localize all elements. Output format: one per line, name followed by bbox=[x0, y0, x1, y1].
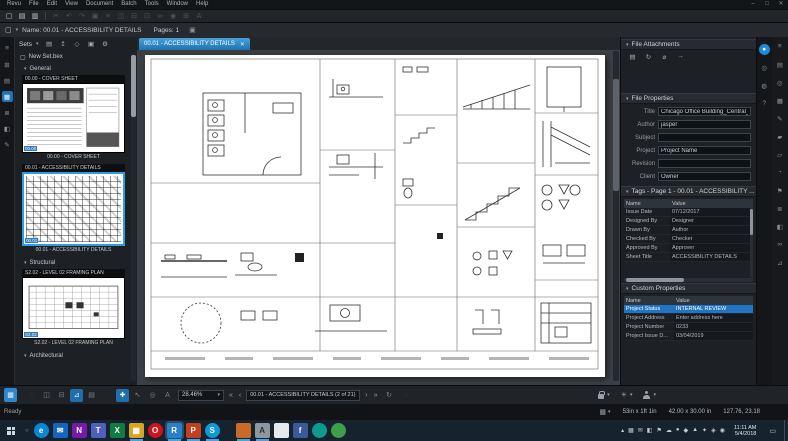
last-page-button[interactable]: » bbox=[373, 392, 379, 399]
file-properties-form: Title Author Subject Project Revision Cl… bbox=[621, 104, 756, 186]
split-sync-icon[interactable]: ◌ bbox=[400, 389, 413, 402]
client-field-label: Client bbox=[626, 174, 658, 180]
layers-panel-icon[interactable]: ≣ bbox=[2, 107, 13, 118]
undo-icon[interactable]: ↶ bbox=[64, 11, 74, 21]
property-name: Project Issue D... bbox=[624, 332, 674, 340]
thumbnails-panel-icon[interactable]: ⊞ bbox=[2, 59, 13, 70]
windows-taskbar: ○ e✉NTX▦ORPS Af ▴ ▦✉◧⚑☁●◆▲✦◈◉ 11:11 AM 5… bbox=[0, 420, 788, 441]
sheet-card-caption: 00.00 - COVER SHEET bbox=[22, 153, 125, 162]
document-canvas[interactable] bbox=[137, 50, 620, 385]
first-page-button[interactable]: « bbox=[228, 392, 234, 399]
name-column-header[interactable]: Name bbox=[624, 199, 670, 208]
pen-tool-icon[interactable]: ✎ bbox=[774, 113, 785, 124]
menu-item[interactable]: Edit bbox=[43, 0, 61, 9]
brightness-icon[interactable]: ☀ bbox=[621, 391, 627, 399]
sheet-card-title: 00.00 - COVER SHEET bbox=[22, 75, 125, 83]
list-panel-icon[interactable]: ≣ bbox=[774, 203, 785, 214]
table-row-project-number[interactable]: Project Number0233 bbox=[624, 323, 753, 332]
image-panel-icon[interactable]: ◧ bbox=[774, 221, 785, 232]
teams-app-icon[interactable]: T bbox=[91, 423, 106, 438]
tray-icon[interactable]: ◧ bbox=[647, 427, 653, 434]
select-text-icon[interactable]: A bbox=[161, 389, 174, 402]
signatures-panel-icon[interactable]: ✎ bbox=[2, 139, 13, 150]
section-header-architectural[interactable]: ▾ Architectural bbox=[15, 350, 137, 361]
file-access-panel-icon[interactable]: ≡ bbox=[2, 43, 13, 54]
pan-tool-icon[interactable]: ✚ bbox=[116, 389, 129, 402]
compare-icon[interactable]: ◫ bbox=[116, 11, 126, 21]
open-window-icon[interactable]: A bbox=[255, 423, 270, 438]
chevron-down-icon: ▾ bbox=[24, 66, 27, 72]
flatten-icon[interactable]: ≡ bbox=[103, 11, 113, 21]
zoom-tool-icon[interactable]: ◎ bbox=[146, 389, 159, 402]
tray-icon[interactable]: ◈ bbox=[711, 427, 716, 434]
tag-value: ACCESSIBILITY DETAILS bbox=[670, 253, 753, 261]
document-icon: ▢ bbox=[5, 26, 12, 34]
property-name: Project Address bbox=[624, 314, 674, 322]
zoom-level-select[interactable]: 28.46% ▾ bbox=[178, 390, 224, 401]
lock-set-icon[interactable]: ▣ bbox=[87, 40, 96, 49]
property-value: 0233 bbox=[674, 323, 753, 331]
properties-panel-icon[interactable]: ≡ bbox=[774, 41, 785, 52]
file-properties-label: File Properties bbox=[632, 95, 674, 102]
tag-name: Sheet Title bbox=[624, 253, 670, 261]
sets-panel-icon[interactable]: ▦ bbox=[2, 91, 13, 102]
author-field-label: Author bbox=[626, 122, 658, 128]
table-row[interactable]: Issue Date07/12/2017 bbox=[624, 208, 753, 217]
chevron-down-icon: ▾ bbox=[217, 392, 220, 398]
sheet-thumbnail[interactable]: 00.00 bbox=[22, 83, 125, 153]
tray-icon[interactable]: ◆ bbox=[683, 427, 688, 434]
cursor-position-readout: 127.76, 23.18 bbox=[723, 409, 760, 415]
chevron-down-icon: ▾ bbox=[24, 353, 27, 359]
tag-value: Designer bbox=[670, 217, 753, 225]
link-icon[interactable]: ∞ bbox=[155, 11, 165, 21]
property-value: INTERNAL REVIEW bbox=[674, 305, 753, 313]
presentation-mode-icon[interactable]: ◌ bbox=[25, 389, 38, 402]
document-tab-bar: 00.01 - ACCESSIBILITY DETAILS ✕ bbox=[137, 37, 620, 50]
chevron-down-icon[interactable]: ▾ bbox=[607, 392, 610, 398]
menu-item[interactable]: Help bbox=[192, 0, 212, 9]
table-row[interactable]: Drawn ByAuthor bbox=[624, 226, 753, 235]
sketch-tool-icon[interactable]: ▤ bbox=[85, 389, 98, 402]
excel-app-icon[interactable]: X bbox=[110, 423, 125, 438]
chevron-down-icon: ▾ bbox=[626, 42, 629, 48]
panel-toggle-button[interactable]: ▦ bbox=[4, 388, 17, 402]
chevron-down-icon[interactable]: ▾ bbox=[608, 409, 611, 415]
tray-icon[interactable]: ☁ bbox=[666, 427, 672, 434]
left-panel-rail: ≡⊞▤▦≣◧✎ bbox=[0, 37, 14, 385]
bluebeam-revu-window: RevuFileEditViewDocumentBatchToolsWindow… bbox=[0, 0, 788, 441]
markup-list-toggle-icon[interactable]: ▦ bbox=[599, 408, 606, 416]
search-panel-icon[interactable]: ◎ bbox=[759, 62, 770, 73]
window-controls: –□✕ bbox=[746, 0, 788, 9]
tag-value: Checker bbox=[670, 235, 753, 243]
revision-field-label: Revision bbox=[626, 161, 658, 167]
table-row-project-status[interactable]: Project StatusINTERNAL REVIEW bbox=[624, 305, 753, 314]
sheet-thumbnail[interactable]: 00.01 bbox=[22, 172, 125, 246]
title-field[interactable] bbox=[658, 107, 751, 116]
windows-logo-icon bbox=[7, 427, 15, 435]
document-area: 00.01 - ACCESSIBILITY DETAILS ✕ bbox=[137, 37, 620, 385]
next-page-button[interactable]: › bbox=[364, 392, 368, 399]
flag-panel-icon[interactable]: ⚑ bbox=[774, 185, 785, 196]
open-set-icon[interactable]: ▤ bbox=[45, 40, 54, 49]
sheet-card-framing[interactable]: S2.02 - LEVEL 02 FRAMING PLAN bbox=[22, 269, 125, 348]
sheet-number-chip: 00.01 bbox=[25, 238, 38, 243]
sheet-card-caption: 00.01 - ACCESSIBILITY DETAILS bbox=[22, 246, 125, 255]
snapshot-icon[interactable]: ⊡ bbox=[142, 11, 152, 21]
spaces-panel-icon[interactable]: ◧ bbox=[2, 123, 13, 134]
document-info-bar: ▢ ▾ Name: 00.01 - ACCESSIBILITY DETAILS … bbox=[0, 22, 788, 37]
form-icon[interactable]: ⊞ bbox=[181, 11, 191, 21]
close-tab-icon[interactable]: ✕ bbox=[240, 41, 245, 48]
document-name-label: Name: 00.01 - ACCESSIBILITY DETAILS bbox=[22, 27, 141, 34]
accessibility-details-art bbox=[26, 176, 121, 242]
tag-name: Approved By bbox=[624, 244, 670, 252]
scrollbar-thumb[interactable] bbox=[750, 209, 753, 235]
tags-header[interactable]: ▾ Tags - Page 1 - 00.01 - ACCESSIBILITY … bbox=[621, 186, 756, 197]
drawing-sheet[interactable] bbox=[145, 55, 605, 377]
table-row-project-issue-date[interactable]: Project Issue D...03/04/2019 bbox=[624, 332, 753, 341]
open-window-icon[interactable]: f bbox=[293, 423, 308, 438]
tag-name: Issue Date bbox=[624, 208, 670, 216]
revision-field[interactable] bbox=[658, 159, 751, 168]
file-properties-header[interactable]: ▾ File Properties bbox=[621, 93, 756, 104]
chevron-down-icon[interactable]: ▾ bbox=[630, 392, 633, 398]
highlight-tool-icon[interactable]: ▰ bbox=[774, 131, 785, 142]
property-name: Project Status bbox=[624, 305, 674, 313]
open-window-icon[interactable] bbox=[312, 423, 327, 438]
file-attachments-label: File Attachments bbox=[632, 41, 680, 48]
page-selector[interactable]: 00.01 - ACCESSIBILITY DETAILS (2 of 21) bbox=[246, 390, 360, 401]
sheet-card-caption: S2.02 - LEVEL 02 FRAMING PLAN bbox=[22, 339, 125, 348]
cover-sheet-art bbox=[23, 84, 124, 151]
subject-field-label: Subject bbox=[626, 135, 658, 141]
project-field-label: Project bbox=[626, 148, 658, 154]
tags-scrollbar[interactable] bbox=[750, 208, 753, 277]
table-row[interactable]: Approved ByApprover bbox=[624, 244, 753, 253]
ocr-icon[interactable]: A bbox=[194, 11, 204, 21]
tray-icon[interactable]: ✦ bbox=[702, 427, 707, 434]
client-field[interactable] bbox=[658, 172, 751, 181]
tag-value: Author bbox=[670, 226, 753, 234]
measure-tool-icon[interactable]: ⊿ bbox=[70, 389, 83, 402]
sheet-card-title: S2.02 - LEVEL 02 FRAMING PLAN bbox=[22, 269, 125, 277]
custom-properties-header[interactable]: ▾ Custom Properties bbox=[621, 283, 756, 294]
chevron-down-icon: ▾ bbox=[626, 96, 629, 102]
clock-time: 11:11 AM bbox=[734, 425, 756, 431]
powerpoint-app-icon[interactable]: P bbox=[186, 423, 201, 438]
onenote-app-icon[interactable]: N bbox=[72, 423, 87, 438]
open-window-icon[interactable] bbox=[236, 423, 251, 438]
sheet-drawing bbox=[145, 55, 605, 377]
taskbar-search-icon[interactable]: ○ bbox=[25, 428, 29, 434]
lock-icon[interactable] bbox=[598, 394, 604, 399]
menu-item[interactable]: View bbox=[61, 0, 82, 9]
tag-name: Checked By bbox=[624, 235, 670, 243]
chevron-down-icon[interactable]: ▾ bbox=[36, 41, 39, 47]
set-file-icon: ▢ bbox=[20, 54, 26, 61]
menu-item[interactable]: Document bbox=[82, 0, 117, 9]
document-tab-label: 00.01 - ACCESSIBILITY DETAILS bbox=[144, 41, 235, 47]
mail-app-icon[interactable]: ✉ bbox=[53, 423, 68, 438]
redo-icon[interactable]: ↷ bbox=[77, 11, 87, 21]
tool-chest-icon[interactable]: ▦ bbox=[774, 95, 785, 106]
previous-page-button[interactable]: ‹ bbox=[238, 392, 242, 399]
edge-app-icon[interactable]: e bbox=[34, 423, 49, 438]
new-document-icon[interactable]: ▢ bbox=[4, 11, 14, 21]
section-header-structural[interactable]: ▾ Structural bbox=[15, 257, 137, 268]
overlay-icon[interactable]: ⊟ bbox=[129, 11, 139, 21]
property-name: Project Number bbox=[624, 323, 674, 331]
paste-icon[interactable]: ▣ bbox=[90, 11, 100, 21]
recents-panel-icon[interactable]: ◔ bbox=[774, 167, 785, 178]
tag-value: 07/12/2017 bbox=[670, 208, 753, 216]
profile-icon[interactable] bbox=[643, 391, 650, 399]
measurement-readout: 53in x 1ft 1in bbox=[623, 409, 657, 415]
sheet-number-chip: 00.00 bbox=[24, 146, 37, 151]
sidebar-scrollbar[interactable] bbox=[131, 53, 136, 381]
cut-icon[interactable]: ✂ bbox=[51, 11, 61, 21]
studio-panel-icon[interactable]: ● bbox=[759, 44, 770, 55]
main-toolbar: ▢▤▥✂↶↷▣≡◫⊟⊡∞◉⊞A bbox=[0, 9, 788, 22]
property-value: 03/04/2019 bbox=[674, 332, 753, 340]
tags-table: Name Value Issue Date07/12/2017 Designed… bbox=[624, 199, 753, 282]
tray-expand-icon[interactable]: ▴ bbox=[621, 427, 624, 434]
eraser-tool-icon[interactable]: ▱ bbox=[774, 149, 785, 160]
measure-panel-icon[interactable]: ⊿ bbox=[774, 257, 785, 268]
value-column-header[interactable]: Value bbox=[674, 296, 753, 305]
navigation-bar: ▦ ◌◫⊟⊿▤ ✚↖◎A 28.46% ▾ « ‹ 00.01 - ACCESS… bbox=[0, 385, 788, 404]
split-vertical-icon[interactable]: ◫ bbox=[40, 389, 53, 402]
section-label: Structural bbox=[30, 260, 56, 266]
document-tab[interactable]: 00.01 - ACCESSIBILITY DETAILS ✕ bbox=[139, 38, 250, 50]
sync-views-icon[interactable]: ↻ bbox=[383, 389, 396, 402]
property-value: Enter address here bbox=[674, 314, 753, 322]
custom-properties-label: Custom Properties bbox=[632, 285, 686, 292]
hyperlink-panel-icon[interactable]: ∞ bbox=[774, 239, 785, 250]
select-tool-icon[interactable]: ↖ bbox=[131, 389, 144, 402]
scrollbar-thumb[interactable] bbox=[613, 79, 619, 191]
section-label: Architectural bbox=[30, 353, 63, 359]
tag-value: Approver bbox=[670, 244, 753, 252]
document-pages-label: Pages: 1 bbox=[153, 27, 179, 34]
scrollbar-thumb[interactable] bbox=[131, 55, 136, 117]
add-to-set-icon[interactable]: ↥ bbox=[59, 40, 68, 49]
main-area: ≡⊞▤▦≣◧✎ Sets ▾ ▤↥◇▣⚙ ▢ New Set.bex ▾ Gen… bbox=[0, 37, 788, 385]
chevron-down-icon: ▾ bbox=[626, 286, 629, 292]
notification-center-icon[interactable]: ▭ bbox=[765, 427, 780, 435]
table-row[interactable]: Designed ByDesigner bbox=[624, 217, 753, 226]
toolbar-separator[interactable] bbox=[45, 12, 46, 20]
search-icon[interactable]: ◎ bbox=[774, 77, 785, 88]
tags-label: Tags - Page 1 - 00.01 - ACCESSIBILITY ..… bbox=[632, 188, 755, 195]
revu-app-icon[interactable]: R bbox=[167, 423, 182, 438]
opera-app-icon[interactable]: O bbox=[148, 423, 163, 438]
sheet-card-title: 00.01 - ACCESSIBILITY DETAILS bbox=[22, 164, 125, 172]
taskbar-clock[interactable]: 11:11 AM 5/4/2018 bbox=[729, 425, 761, 437]
skype-app-icon[interactable]: S bbox=[205, 423, 220, 438]
section-label: General bbox=[30, 66, 51, 72]
tray-icon[interactable]: ⚑ bbox=[656, 427, 661, 434]
paperclip-icon[interactable]: ⌀ bbox=[660, 52, 669, 61]
chevron-down-icon: ▾ bbox=[24, 260, 27, 266]
help-panel-icon[interactable]: ? bbox=[759, 98, 770, 109]
show-desktop-button[interactable] bbox=[784, 420, 788, 441]
custom-properties-table: Name Value Project StatusINTERNAL REVIEW… bbox=[624, 296, 753, 341]
menu-item[interactable]: Tools bbox=[141, 0, 163, 9]
tag-name: Drawn By bbox=[624, 226, 670, 234]
menu-item[interactable]: File bbox=[25, 0, 43, 9]
scrollbar-thumb[interactable] bbox=[626, 278, 684, 282]
right-properties-panel: ▾ File Attachments ▤↻⌀→ ▾ File Propertie… bbox=[620, 37, 756, 385]
status-ready-label: Ready bbox=[4, 409, 21, 415]
page-size-readout: 42.00 x 30.00 in bbox=[669, 409, 712, 415]
subject-field[interactable] bbox=[658, 133, 751, 142]
chevron-down-icon: ▾ bbox=[626, 189, 629, 195]
system-tray: ▴ ▦✉◧⚑☁●◆▲✦◈◉ 11:11 AM 5/4/2018 ▭ bbox=[621, 420, 788, 441]
right-panel-rail: ●◎◍? ≡▤◎▦✎▰▱◔⚑≣◧∞⊿ bbox=[756, 37, 788, 385]
open-window-icon[interactable] bbox=[331, 423, 346, 438]
menu-item[interactable]: Batch bbox=[117, 0, 140, 9]
sheet-number-chip: S2.02 bbox=[24, 332, 38, 337]
menu-item[interactable]: Window bbox=[163, 0, 192, 9]
maximize-button[interactable]: □ bbox=[760, 0, 774, 9]
chevron-down-icon[interactable]: ▾ bbox=[653, 392, 656, 398]
attachment-folder-icon[interactable]: ▤ bbox=[628, 52, 637, 61]
set-settings-icon[interactable]: ⚙ bbox=[101, 40, 110, 49]
attachment-refresh-icon[interactable]: ↻ bbox=[644, 52, 653, 61]
document-scrollbar[interactable] bbox=[613, 51, 619, 381]
copy-page-icon[interactable]: ▣ bbox=[189, 26, 196, 34]
author-field[interactable] bbox=[658, 120, 751, 129]
open-window-icon[interactable] bbox=[274, 423, 289, 438]
sheet-card-accessibility[interactable]: 00.01 - ACCESSIBILITY DETAILS 00.01 00.0… bbox=[22, 164, 125, 255]
stamp-icon[interactable]: ◉ bbox=[168, 11, 178, 21]
attachments-toolbar: ▤↻⌀→ bbox=[621, 50, 756, 63]
save-file-icon[interactable]: ▥ bbox=[30, 11, 40, 21]
table-row[interactable]: Sheet TitleACCESSIBILITY DETAILS bbox=[624, 253, 753, 262]
sheet-card-cover[interactable]: 00.00 - COVER SHEET bbox=[22, 75, 125, 162]
sets-toolbar: Sets ▾ ▤↥◇▣⚙ bbox=[15, 37, 137, 51]
tray-icon[interactable]: ◉ bbox=[720, 427, 725, 434]
tray-icon[interactable]: ▦ bbox=[628, 427, 634, 434]
section-header-general[interactable]: ▾ General bbox=[15, 63, 137, 74]
value-column-header[interactable]: Value bbox=[670, 199, 753, 208]
file-attachments-header[interactable]: ▾ File Attachments bbox=[621, 39, 756, 50]
tray-icon[interactable]: ✉ bbox=[638, 427, 643, 434]
project-field[interactable] bbox=[658, 146, 751, 155]
bookmarks-panel-icon[interactable]: ▤ bbox=[2, 75, 13, 86]
sheet-thumbnail[interactable]: S2.02 bbox=[22, 277, 125, 339]
tags-table-header: Name Value bbox=[624, 199, 753, 208]
tray-icon[interactable]: ● bbox=[676, 427, 680, 434]
menu-item[interactable]: Revu bbox=[3, 0, 25, 9]
set-file-item[interactable]: ▢ New Set.bex bbox=[15, 51, 137, 63]
minimize-button[interactable]: – bbox=[746, 0, 760, 9]
table-row[interactable]: Checked ByChecker bbox=[624, 235, 753, 244]
attachment-open-icon[interactable]: → bbox=[676, 52, 685, 61]
tag-set-icon[interactable]: ◇ bbox=[73, 40, 82, 49]
title-field-label: Title bbox=[626, 109, 658, 115]
sets-panel: Sets ▾ ▤↥◇▣⚙ ▢ New Set.bex ▾ General 00.… bbox=[14, 37, 137, 385]
tray-icon[interactable]: ▲ bbox=[692, 427, 698, 434]
status-bar: Ready ▦ ▾ 53in x 1ft 1in 42.00 x 30.00 i… bbox=[0, 404, 788, 420]
start-button[interactable] bbox=[2, 420, 20, 441]
framing-plan-art bbox=[23, 278, 124, 337]
zoom-level-value: 28.46% bbox=[182, 392, 202, 398]
split-horizontal-icon[interactable]: ⊟ bbox=[55, 389, 68, 402]
comments-panel-icon[interactable]: ◍ bbox=[759, 80, 770, 91]
markup-list-icon[interactable]: ▤ bbox=[774, 59, 785, 70]
set-file-label: New Set.bex bbox=[29, 54, 63, 60]
tags-h-scrollbar[interactable] bbox=[624, 278, 753, 282]
close-button[interactable]: ✕ bbox=[774, 0, 788, 9]
open-file-icon[interactable]: ▤ bbox=[17, 11, 27, 21]
sets-dropdown-label[interactable]: Sets bbox=[19, 41, 32, 48]
menu-bar: RevuFileEditViewDocumentBatchToolsWindow… bbox=[0, 0, 788, 9]
custom-table-header: Name Value bbox=[624, 296, 753, 305]
chevron-down-icon[interactable]: ▾ bbox=[16, 27, 19, 33]
tag-name: Designed By bbox=[624, 217, 670, 225]
table-row-project-address[interactable]: Project AddressEnter address here bbox=[624, 314, 753, 323]
name-column-header[interactable]: Name bbox=[624, 296, 674, 305]
clock-date: 5/4/2018 bbox=[734, 431, 756, 437]
explorer-app-icon[interactable]: ▦ bbox=[129, 423, 144, 438]
